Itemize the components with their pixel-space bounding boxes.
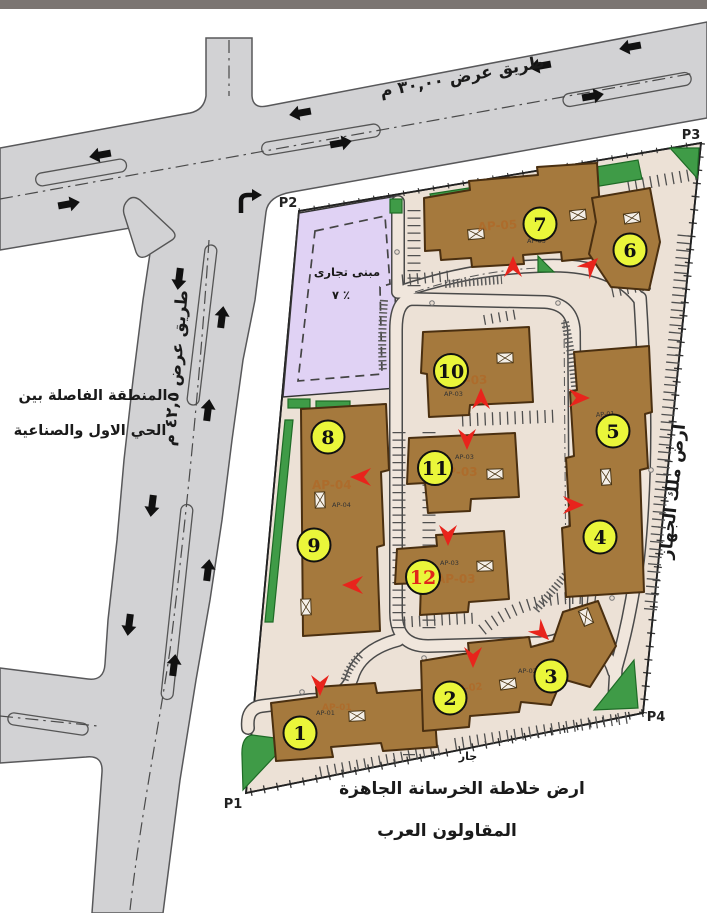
- site-plan-page: مبنى تجارى ٧ ٪: [0, 0, 707, 913]
- badge-1: 1: [284, 717, 317, 750]
- commercial-parcel: مبنى تجارى ٧ ٪: [283, 196, 402, 397]
- ap-label: AP-05: [477, 217, 517, 234]
- south-neighbor-small-label: جار: [458, 750, 477, 763]
- badge-6: 6: [614, 234, 647, 267]
- svg-text:3: 3: [544, 666, 557, 688]
- site-parcel: مبنى تجارى ٧ ٪: [242, 143, 701, 793]
- svg-text:5: 5: [606, 421, 619, 443]
- badge-12: 12: [406, 560, 440, 594]
- badge-9: 9: [298, 529, 331, 562]
- ap-label: AP-04: [312, 478, 352, 492]
- window-top-edge: [0, 0, 707, 9]
- corner-point-p4: P4: [647, 710, 666, 725]
- south-parcel-label-line1: ارض خلاطة الخرسانة الجاهزة: [339, 779, 585, 799]
- badge-10: 10: [434, 354, 468, 388]
- buffer-zone-label-line1: المنطقة الفاصلة بين: [19, 388, 168, 404]
- commercial-parcel-label: مبنى تجارى: [314, 265, 380, 279]
- svg-text:6: 6: [623, 240, 636, 262]
- ap-label-small: AP-04: [332, 501, 351, 509]
- badge-4: 4: [584, 521, 617, 554]
- svg-text:10: 10: [438, 361, 464, 383]
- badge-11: 11: [418, 451, 452, 485]
- corner-point-p1: P1: [224, 797, 243, 812]
- ap-label: AP-03: [436, 572, 476, 586]
- badge-5: 5: [597, 415, 630, 448]
- svg-text:4: 4: [593, 527, 606, 549]
- corner-point-p2: P2: [279, 196, 298, 211]
- badge-8: 8: [312, 421, 345, 454]
- svg-text:2: 2: [443, 688, 456, 710]
- ap-label-small: AP-03: [455, 453, 474, 461]
- buffer-zone-label-line2: الحي الاول والصناعية: [14, 423, 167, 439]
- south-parcel-label-line2: المقاولون العرب: [377, 821, 517, 841]
- svg-text:12: 12: [410, 567, 436, 589]
- badge-3: 3: [535, 660, 568, 693]
- svg-text:9: 9: [307, 535, 320, 557]
- svg-text:11: 11: [422, 458, 448, 480]
- svg-text:1: 1: [293, 723, 306, 745]
- ap-label-small: AP-03: [440, 559, 459, 567]
- badge-7: 7: [524, 208, 557, 241]
- ap-label-small: AP-01: [316, 709, 335, 717]
- ap-label-small: AP-03: [444, 390, 463, 398]
- site-plan-map: مبنى تجارى ٧ ٪: [0, 0, 707, 913]
- commercial-parcel-percent: ٧ ٪: [332, 288, 350, 302]
- svg-text:7: 7: [533, 214, 546, 236]
- green-patch: [390, 199, 402, 213]
- green-patch: [288, 399, 310, 408]
- svg-text:8: 8: [321, 427, 334, 449]
- corner-point-p3: P3: [682, 128, 701, 143]
- badge-2: 2: [434, 682, 467, 715]
